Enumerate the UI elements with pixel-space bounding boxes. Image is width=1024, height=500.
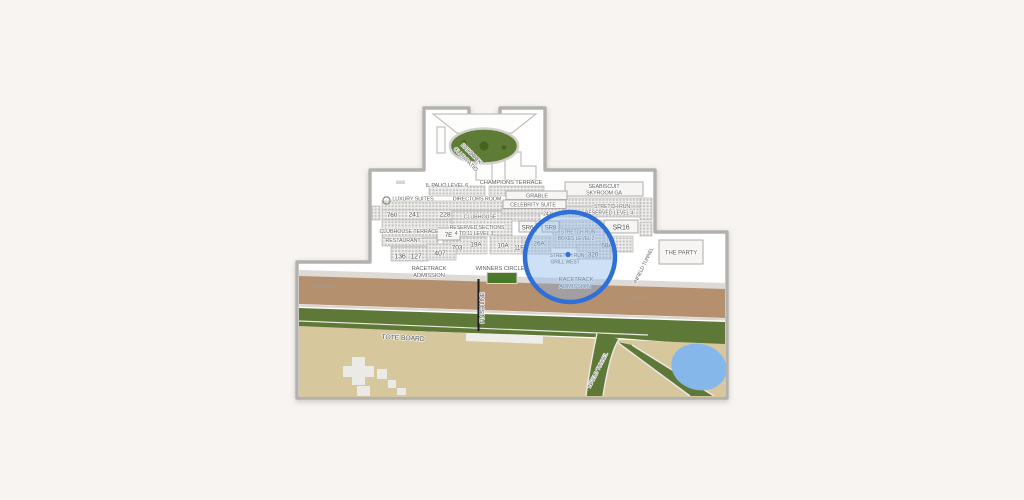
area-label-celebrity-suite: CELEBRITY SUITE [510, 203, 556, 209]
section-label-19a: 19A [470, 242, 482, 249]
area-label-luxury-suites: LUXURY SUITES [392, 197, 434, 203]
infield-building [377, 369, 387, 379]
paddock-tree-icon [502, 145, 507, 150]
area-label-clubhouse-terrace: CLUBHOUSE TERRACE [379, 229, 439, 235]
area-label-directors-room: DIRECTORS ROOM [453, 197, 502, 203]
area-label-grable: GRABLE [526, 194, 548, 200]
pole-marker-right: ◄ 1/8 POLE [626, 296, 648, 301]
section-label-sr16: SR16 [612, 225, 629, 232]
section-label-228: 228 [439, 212, 450, 219]
level6-divider-block [396, 181, 405, 185]
section-label-10a: 10A [497, 243, 509, 250]
infield-building [388, 380, 396, 388]
section-label-760: 760 [387, 212, 398, 219]
venue-map: PADDOCK CLUB/PATIO [0, 0, 1024, 500]
winners-circle-lawn [487, 273, 517, 284]
seat-block[interactable] [640, 198, 652, 220]
section-label-136: 136 [394, 254, 406, 261]
seat-block[interactable] [372, 206, 380, 220]
area-label-reserved-line2: 4 TO 11 LEVEL 3 [455, 231, 494, 237]
area-label-seabiscuit-line2: SKYROOM GA [586, 191, 622, 197]
selection-marker-dot [565, 252, 570, 257]
infield-building [357, 386, 370, 396]
track-area: ◄ 1/8 POLE ◄ 1/8 POLE [299, 270, 732, 397]
section-label-241: 241 [408, 212, 419, 219]
area-label-stretch-run-reserved-line1: STRETCH RUN [594, 204, 630, 210]
finish-line-label: FINISH LINE [480, 292, 486, 323]
area-label-the-party: THE PARTY [665, 251, 697, 257]
section-label-127: 127 [410, 254, 422, 261]
paddock-left-structure [437, 127, 445, 153]
section-label-703: 703 [452, 245, 463, 252]
section-label-7e: 7E [445, 232, 453, 239]
area-label-il-palio: IL PALIO LEVEL 6 [426, 183, 468, 189]
area-label-clubhouse: CLUBHOUSE [464, 215, 497, 221]
section-label-407: 407 [434, 251, 446, 258]
area-label-champions-terrace: CHAMPIONS TERRACE [480, 180, 543, 186]
racetrack-admission-left-line1: RACETRACK [412, 266, 447, 272]
area-label-restaurant: RESTAURANT [385, 238, 421, 244]
seat-block[interactable] [640, 222, 652, 236]
pole-marker-left: ◄ 1/8 POLE [312, 283, 334, 288]
infield-building [343, 366, 374, 377]
winners-circle-label: WINNERS CIRCLE [476, 266, 525, 272]
racetrack-admission-left-line2: ADMISSION [413, 273, 445, 279]
infield-building [397, 388, 406, 395]
section-label-11f: 11F [514, 246, 524, 252]
paddock-tree-icon [480, 142, 489, 151]
area-label-seabiscuit-line1: SEABISCUIT [588, 184, 620, 190]
